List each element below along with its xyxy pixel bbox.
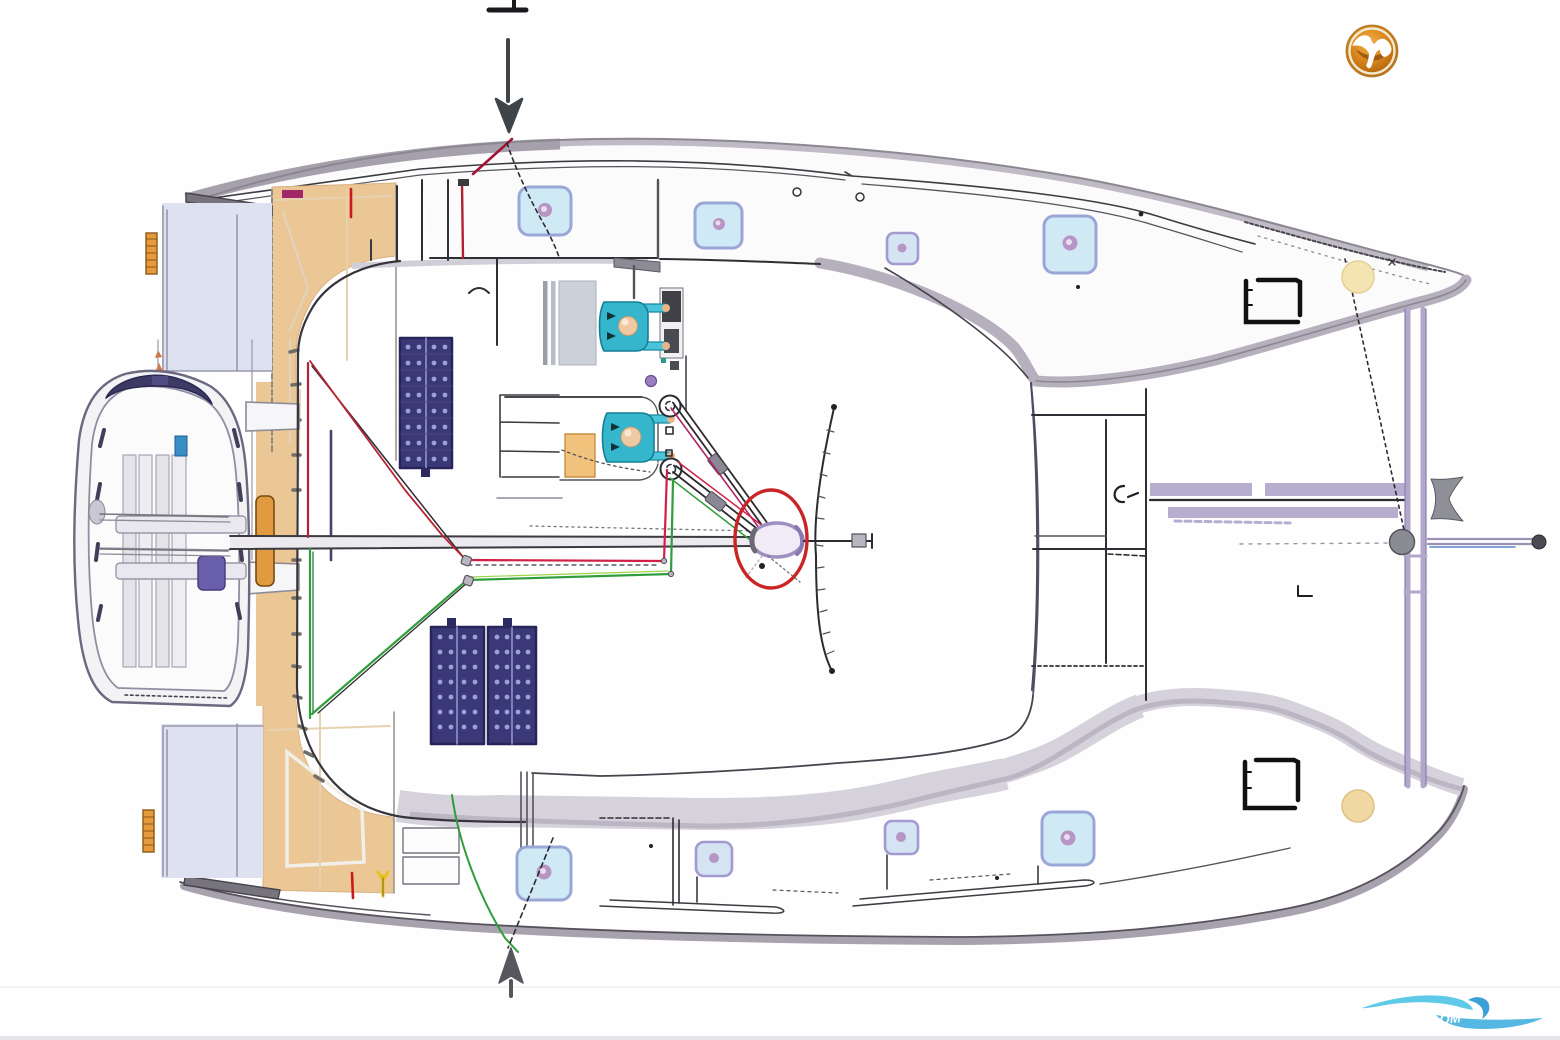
svg-text:OM: OM <box>1439 1010 1462 1027</box>
